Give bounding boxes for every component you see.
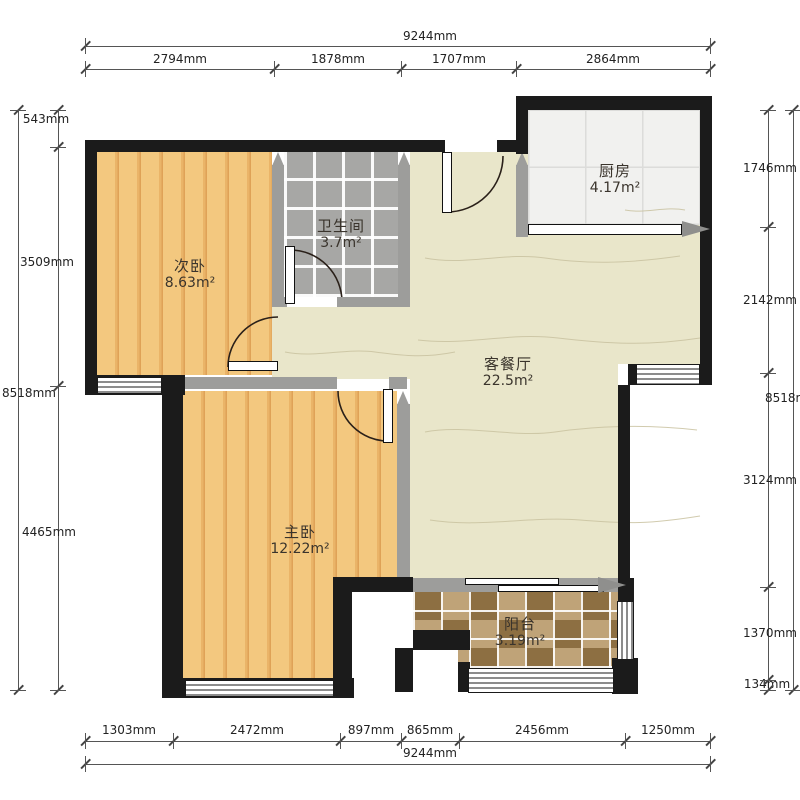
dimension-extension — [459, 733, 460, 749]
dim-line-left-segments — [58, 110, 59, 690]
dimension-extension — [710, 733, 711, 749]
dimension-extension — [85, 733, 86, 749]
dim-right-seg-1: 2142mm — [742, 293, 798, 307]
dimension-extension — [85, 756, 86, 772]
dim-top-seg-1: 1878mm — [303, 52, 373, 66]
dim-bottom-seg-2: 897mm — [340, 723, 402, 737]
dim-bottom-seg-0: 1303mm — [94, 723, 164, 737]
dim-right-seg-3: 1370mm — [742, 626, 798, 640]
dimension-extension — [340, 733, 341, 749]
dimension-extension — [760, 227, 776, 228]
dimension-extension — [760, 680, 776, 681]
dimension-extension — [10, 690, 26, 691]
dimension-extension — [50, 386, 66, 387]
dim-top-total: 9244mm — [355, 29, 505, 43]
dimension-extension — [760, 373, 776, 374]
dim-top-seg-2: 1707mm — [424, 52, 494, 66]
dimension-extension — [710, 38, 711, 54]
dim-right-total: 8518mm — [765, 391, 800, 405]
dim-line-bottom-total — [85, 764, 710, 765]
dimension-extension — [760, 110, 776, 111]
dimension-extension — [10, 110, 26, 111]
dimension-extension — [50, 110, 66, 111]
dim-line-left-total — [18, 110, 19, 690]
dim-left-total: 8518mm — [0, 386, 58, 400]
dim-top-seg-0: 2794mm — [145, 52, 215, 66]
floor-plan-page: { "rooms": [ {"id":"second-bedroom","nam… — [0, 0, 800, 800]
dimension-extension — [625, 733, 626, 749]
dim-line-top-total — [85, 46, 710, 47]
dimension-extension — [274, 61, 275, 77]
dim-right-seg-2: 3124mm — [742, 473, 798, 487]
dim-bottom-seg-1: 2472mm — [222, 723, 292, 737]
dimension-extension — [710, 61, 711, 77]
dim-top-seg-3: 2864mm — [578, 52, 648, 66]
dimension-extension — [401, 61, 402, 77]
dimension-extension — [401, 733, 402, 749]
dim-bottom-seg-5: 1250mm — [633, 723, 703, 737]
dimension-extension — [516, 61, 517, 77]
dimension-extension — [85, 61, 86, 77]
dim-left-seg-0: 543mm — [16, 112, 76, 126]
dim-right-seg-0: 1746mm — [742, 161, 798, 175]
dimension-extension — [50, 690, 66, 691]
dimension-layer: 9244mm 2794mm 1878mm 1707mm 2864mm 1303m… — [0, 0, 800, 800]
dim-left-seg-1: 3509mm — [14, 255, 80, 269]
dimension-extension — [173, 733, 174, 749]
dimension-extension — [50, 147, 66, 148]
dim-bottom-total: 9244mm — [355, 746, 505, 760]
dimension-extension — [785, 110, 800, 111]
dim-bottom-seg-3: 865mm — [399, 723, 461, 737]
dim-bottom-seg-4: 2456mm — [507, 723, 577, 737]
dimension-extension — [760, 587, 776, 588]
dimension-extension — [760, 690, 776, 691]
dimension-extension — [85, 38, 86, 54]
dim-left-seg-2: 4465mm — [16, 525, 82, 539]
dimension-extension — [710, 756, 711, 772]
dimension-extension — [785, 690, 800, 691]
